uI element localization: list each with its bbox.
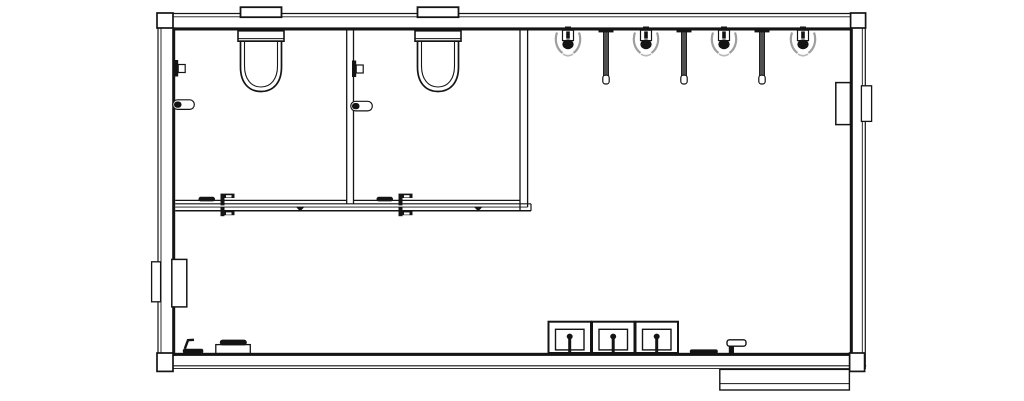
recessed-wall-unit-right-1 [836, 83, 872, 125]
corner-post-bottom-right [850, 353, 865, 371]
urinal-privacy-screen-1 [599, 29, 614, 84]
coat-hook-2 [352, 61, 363, 78]
stall-door-hardware-1 [199, 194, 305, 217]
stall-partition-mid [347, 31, 354, 204]
urinal-privacy-screen-3 [755, 29, 770, 84]
toilet-2 [415, 7, 461, 91]
toilet-paper-dispenser-1 [173, 100, 195, 110]
door-handle-right-1 [690, 340, 746, 355]
wall-right [850, 14, 866, 370]
urinal-privacy-screen-2 [677, 29, 692, 84]
wall-bottom [157, 353, 866, 369]
urinal-2 [634, 27, 658, 56]
recessed-wall-unit-left-1 [152, 259, 187, 307]
stall-partitions [175, 31, 531, 211]
stall-side-wall-right [520, 31, 528, 211]
urinal-1 [556, 27, 580, 56]
entry-landing [720, 369, 850, 390]
urinal-3 [712, 27, 736, 56]
stall-door-hardware-2 [377, 194, 483, 217]
floor-plan-canvas [0, 0, 1024, 401]
floor-plan-svg [0, 0, 1024, 401]
corner-post-top-right [851, 13, 866, 28]
toilet-1 [238, 7, 284, 91]
door-handle-left-1 [183, 340, 204, 354]
toilet-paper-dispenser-2 [351, 101, 373, 111]
sink-1 [549, 322, 592, 353]
wall-left [158, 14, 175, 370]
fixtures [152, 7, 872, 354]
corner-post-top-left [157, 13, 173, 28]
floor-fixture-left-1 [216, 340, 251, 354]
corner-post-bottom-left [157, 353, 173, 371]
coat-hook-1 [174, 60, 185, 77]
sink-2 [592, 322, 635, 353]
sink-3 [636, 322, 679, 353]
urinal-4 [791, 27, 815, 56]
